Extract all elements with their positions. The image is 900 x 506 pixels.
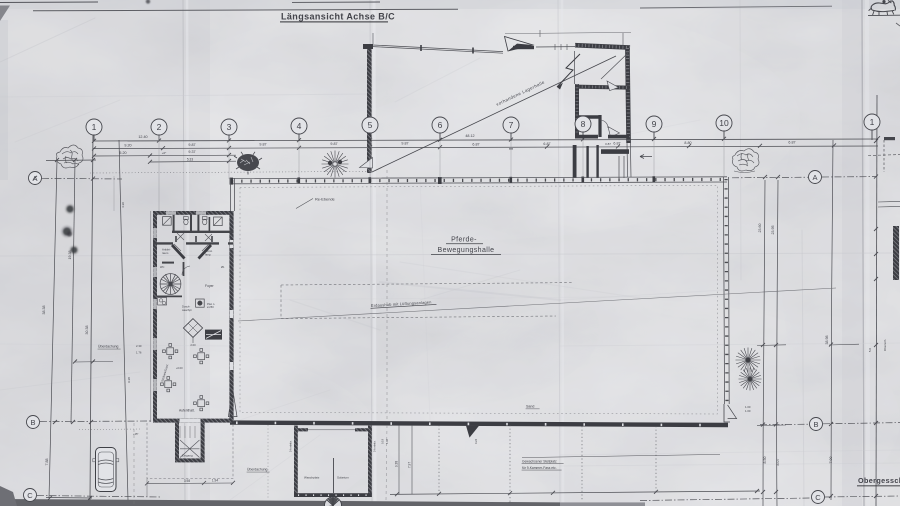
svg-text:10: 10 [719,118,729,128]
svg-text:5-h elektr.: 5-h elektr. [289,440,293,452]
svg-text:1: 1 [870,117,875,127]
svg-text:Obersch.: Obersch. [883,339,887,351]
svg-text:1: 1 [92,122,97,132]
svg-text:6.87: 6.87 [472,142,479,146]
svg-text:WC: WC [160,265,164,269]
svg-text:9.20: 9.20 [124,143,131,147]
svg-text:5.0: 5.0 [868,348,872,353]
svg-text:7: 7 [509,120,514,130]
svg-text:7.00: 7.00 [829,457,833,464]
svg-text:Re-Ebende: Re-Ebende [315,197,335,202]
svg-text:5-h elektr.: 5-h elektr. [373,440,377,452]
svg-text:+0.00: +0.00 [176,366,183,370]
svg-text:48.12: 48.12 [465,134,474,138]
svg-text:Überdachung: Überdachung [98,344,118,348]
svg-text:Ø1: Ø1 [221,265,225,269]
svg-text:6.87: 6.87 [788,141,795,145]
svg-text:5.33: 5.33 [187,157,193,161]
svg-text:0.87: 0.87 [605,142,611,146]
svg-text:0.24: 0.24 [474,438,478,444]
svg-text:raum: raum [162,251,169,255]
svg-text:für 9-Kammer-Fass etc.: für 9-Kammer-Fass etc. [522,466,557,470]
svg-text:9.37: 9.37 [188,150,195,154]
svg-text:6.87: 6.87 [543,142,550,146]
svg-text:C: C [27,491,33,500]
svg-text:4.30: 4.30 [121,202,125,208]
svg-text:Aufenthalt.: Aufenthalt. [179,408,195,412]
svg-text:0.19: 0.19 [381,438,385,444]
svg-text:Eingang: Eingang [182,453,193,457]
svg-text:Gewachsener Stellplatz: Gewachsener Stellplatz [522,459,557,463]
svg-text:Waschplatz: Waschplatz [304,476,320,480]
svg-text:12.40: 12.40 [138,135,147,139]
svg-text:8.07: 8.07 [776,459,780,466]
svg-text:Solarium: Solarium [337,476,349,480]
svg-text:2.30: 2.30 [136,344,142,348]
svg-text:7.97: 7.97 [408,462,412,468]
svg-text:23.60: 23.60 [758,224,762,233]
svg-text:7.88: 7.88 [45,459,49,466]
svg-text:9.38: 9.38 [395,461,399,467]
svg-text:A: A [32,174,37,183]
svg-text:8.50: 8.50 [763,457,767,464]
svg-text:9.87: 9.87 [330,142,337,146]
svg-text:Pferde-: Pferde- [451,237,477,244]
svg-text:Bewegungshalle: Bewegungshalle [438,247,495,254]
svg-text:9.38: 9.38 [127,377,131,383]
svg-text:38.38: 38.38 [42,306,46,315]
svg-text:1.00: 1.00 [745,409,751,413]
svg-text:8: 8 [581,119,586,129]
svg-text:ø 250: ø 250 [207,305,214,309]
svg-text:4: 4 [297,121,302,131]
svg-text:3: 3 [227,122,232,132]
svg-text:A: A [812,173,817,182]
svg-text:38.98: 38.98 [825,336,829,345]
svg-text:Überdachung: Überdachung [247,467,267,471]
svg-text:1.76: 1.76 [136,350,142,354]
svg-text:9.87: 9.87 [259,142,266,146]
svg-text:Obergesscho: Obergesscho [858,476,900,485]
svg-text:8.80: 8.80 [684,141,691,145]
svg-text:Sand: Sand [526,405,534,409]
svg-text:6.87: 6.87 [613,142,620,146]
svg-text:9: 9 [652,119,657,129]
svg-text:3.98: 3.98 [184,479,190,483]
svg-text:30.38: 30.38 [85,326,89,335]
svg-text:B: B [30,418,35,427]
svg-text:2: 2 [157,122,162,132]
svg-text:B: B [813,420,818,429]
svg-text:1.00: 1.00 [385,438,389,444]
svg-text:2.00: 2.00 [190,343,196,347]
svg-text:5: 5 [368,120,373,130]
svg-text:9.87: 9.87 [401,142,408,146]
svg-text:1.94: 1.94 [212,479,218,483]
svg-text:6: 6 [438,120,443,130]
svg-text:23.95: 23.95 [771,226,775,235]
svg-text:waschpl.: waschpl. [182,308,192,312]
svg-text:Längsansicht Achse B/C: Längsansicht Achse B/C [281,12,395,22]
svg-text:9.87: 9.87 [188,143,195,147]
svg-text:C: C [815,493,821,502]
svg-text:fang: fang [205,252,211,256]
svg-text:Foyer: Foyer [205,284,215,288]
svg-text:5.20: 5.20 [119,151,126,155]
svg-text:+0°: +0° [162,151,167,155]
